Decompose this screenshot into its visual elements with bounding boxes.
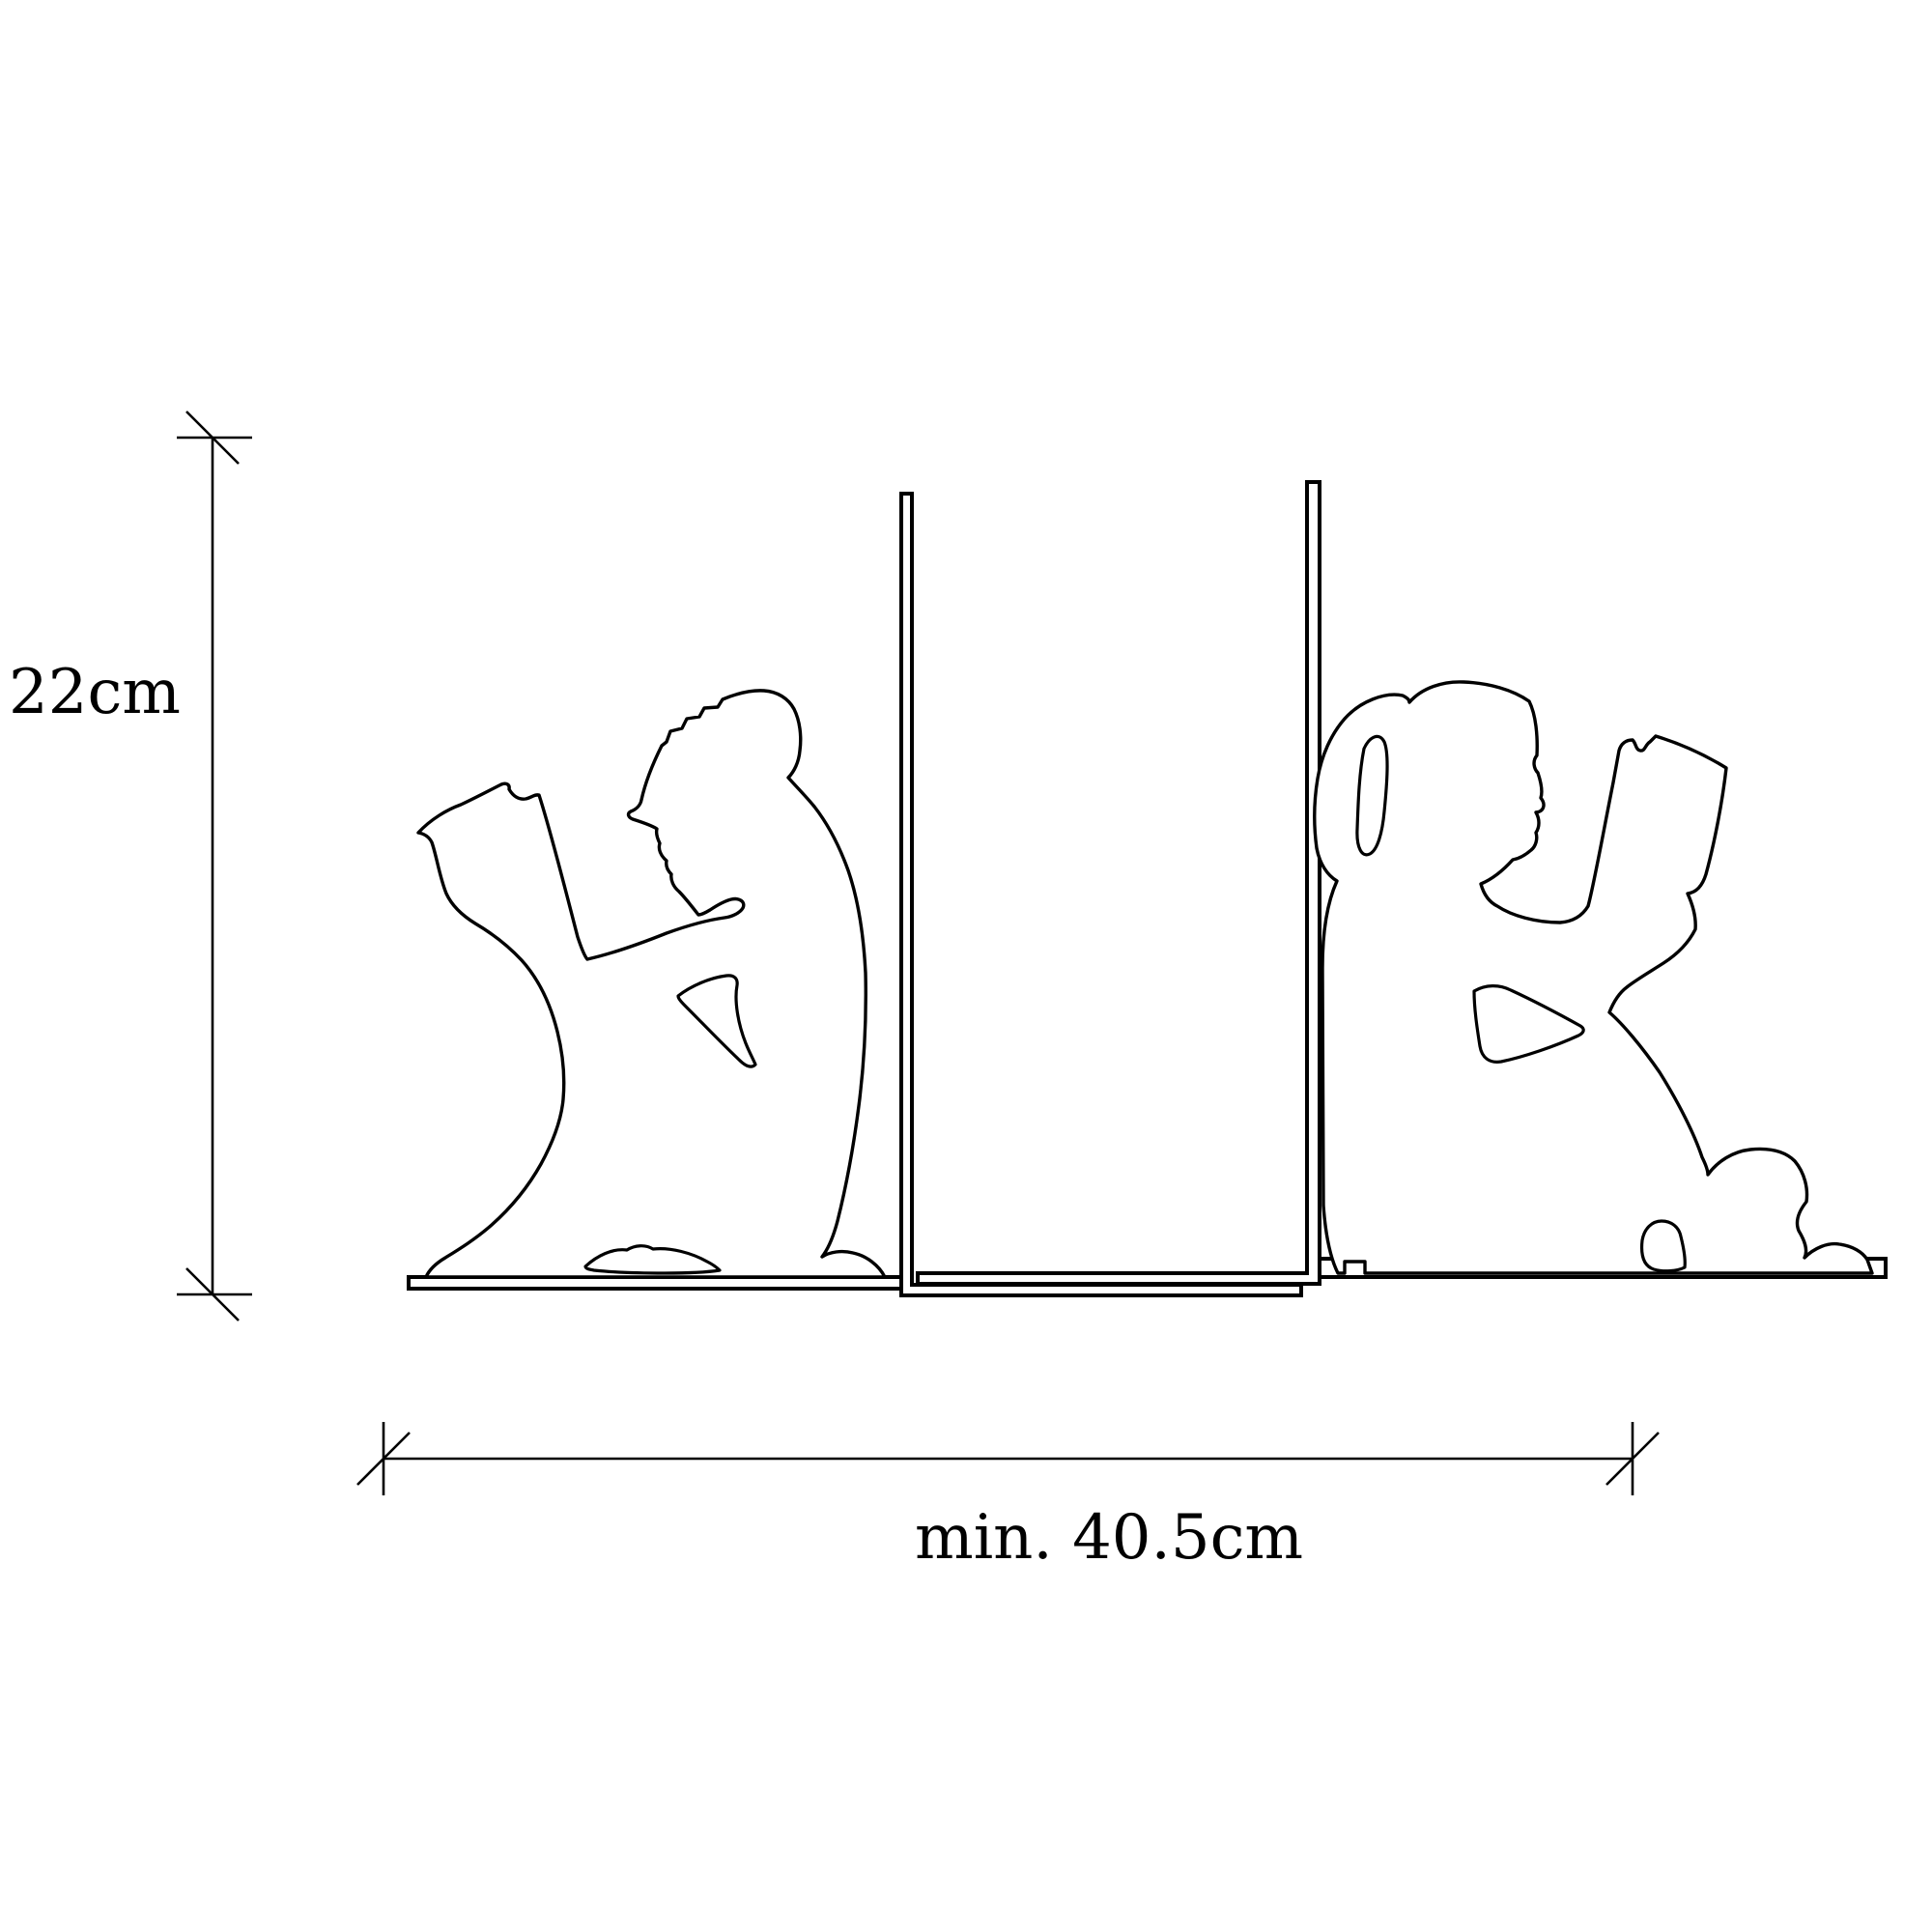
height-dim-bottom-tick: [177, 1268, 252, 1321]
width-dimension: min. 40.5cm: [357, 1422, 1659, 1574]
height-dimension-label: 22cm: [9, 657, 181, 728]
girl-reading-silhouette: [1315, 682, 1872, 1273]
height-dimension: 22cm: [9, 412, 252, 1321]
boy-base-strip: [409, 1277, 901, 1289]
height-dim-top-tick: [177, 412, 252, 464]
width-dimension-label: min. 40.5cm: [915, 1502, 1303, 1574]
girl-feet-gap-cutout: [1642, 1221, 1686, 1271]
bookend-technical-drawing: 22cm min. 40.5cm: [0, 0, 1932, 1932]
right-bookend-plate: [918, 482, 1320, 1284]
left-bookend-plate: [901, 494, 1301, 1295]
drawing-canvas: 22cm min. 40.5cm: [0, 0, 1932, 1932]
boy-reading-silhouette: [418, 691, 885, 1277]
